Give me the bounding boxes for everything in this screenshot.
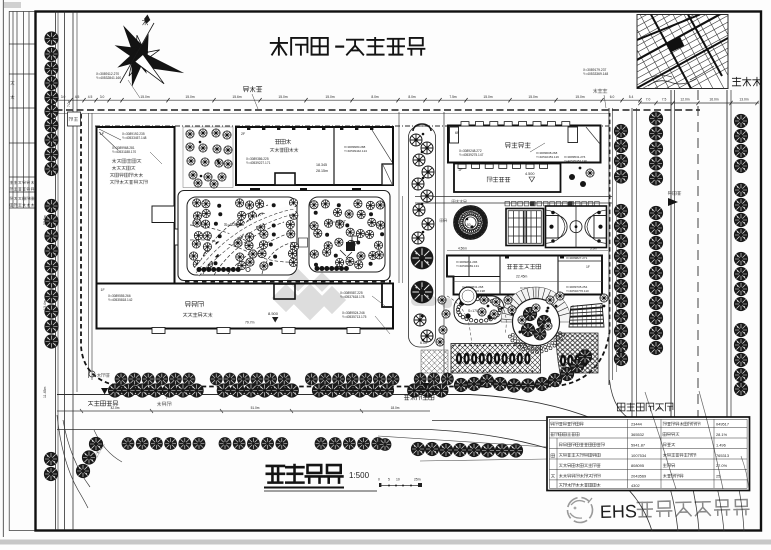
svg-text:Y=40535357.196: Y=40535357.196	[564, 159, 587, 163]
svg-text:16.0m: 16.0m	[709, 98, 718, 102]
svg-text:1007534: 1007534	[631, 453, 647, 458]
svg-text:3.0: 3.0	[100, 95, 105, 99]
svg-text:Y=40532776.110: Y=40532776.110	[566, 289, 589, 293]
svg-text:7.5m: 7.5m	[449, 95, 457, 99]
svg-text:51.0m: 51.0m	[251, 406, 260, 410]
svg-text:S=486.7: S=486.7	[330, 219, 346, 224]
svg-text:6.0: 6.0	[610, 95, 615, 99]
svg-text:4.50m: 4.50m	[458, 247, 467, 251]
svg-text:42.0m: 42.0m	[111, 406, 120, 410]
svg-text:2F: 2F	[459, 168, 463, 172]
svg-text:Y=40539227.171: Y=40539227.171	[246, 161, 271, 165]
svg-text:15.0m: 15.0m	[278, 95, 287, 99]
svg-text:15.0m: 15.0m	[325, 95, 334, 99]
svg-text:5.4: 5.4	[629, 95, 634, 99]
svg-text:15.6m: 15.6m	[232, 95, 241, 99]
svg-text:1.496: 1.496	[716, 442, 726, 447]
svg-text:57.5m: 57.5m	[43, 215, 47, 225]
svg-text:Y=40539275.147: Y=40539275.147	[459, 153, 484, 157]
svg-text:12.0m: 12.0m	[680, 98, 689, 102]
svg-text:Y=40532841.160: Y=40532841.160	[96, 76, 121, 80]
svg-text:25m: 25m	[414, 478, 421, 482]
svg-text:4.5: 4.5	[88, 95, 93, 99]
svg-text:15.0m: 15.0m	[528, 95, 537, 99]
svg-text:Y=40539442.124: Y=40539442.124	[344, 149, 367, 153]
svg-text:15.0m: 15.0m	[140, 95, 149, 99]
svg-text:4.50: 4.50	[464, 223, 471, 227]
svg-text:Y=40533369.148: Y=40533369.148	[583, 72, 608, 76]
svg-text:28.1%: 28.1%	[716, 432, 728, 437]
svg-text:765313: 765313	[716, 453, 729, 458]
svg-text:X=3089827.271: X=3089827.271	[566, 256, 588, 260]
svg-text:Y=40536869.131: Y=40536869.131	[456, 264, 479, 268]
svg-text:22.45m: 22.45m	[516, 275, 527, 279]
svg-text:Y=40532453.126: Y=40532453.126	[536, 155, 559, 159]
svg-text:EHS: EHS	[600, 501, 637, 522]
svg-text:Y=40533457.148: Y=40533457.148	[122, 136, 147, 140]
svg-text:15.0m: 15.0m	[185, 95, 194, 99]
svg-text:S=1068.5: S=1068.5	[224, 222, 244, 227]
svg-text:5: 5	[388, 478, 390, 482]
svg-text:4302: 4302	[631, 483, 640, 488]
svg-text:18.345: 18.345	[316, 163, 327, 167]
svg-text:1:500: 1:500	[349, 471, 370, 480]
svg-text:Y=40535818.142: Y=40535818.142	[108, 298, 133, 302]
svg-text:7.0m: 7.0m	[67, 100, 71, 107]
svg-text:7.0: 7.0	[646, 98, 651, 102]
svg-text:5941.87: 5941.87	[631, 442, 645, 447]
svg-text:808095: 808095	[631, 463, 644, 468]
svg-text:15.0m: 15.0m	[483, 95, 492, 99]
svg-text:6.00: 6.00	[420, 341, 427, 345]
svg-text:13.4m: 13.4m	[43, 300, 47, 310]
svg-text:11.45m: 11.45m	[43, 387, 47, 398]
svg-text:Y=40535713.175: Y=40535713.175	[342, 315, 367, 319]
svg-text:1F: 1F	[586, 265, 590, 269]
svg-text:8.0m: 8.0m	[371, 95, 379, 99]
svg-text:0: 0	[378, 478, 380, 482]
svg-text:13.0m: 13.0m	[739, 98, 748, 102]
svg-text:28.15m: 28.15m	[316, 169, 328, 173]
svg-text:8.500: 8.500	[268, 311, 279, 316]
svg-text:4.500: 4.500	[525, 172, 535, 176]
svg-text:15.0m: 15.0m	[575, 95, 584, 99]
svg-text:2043569: 2043569	[631, 474, 646, 479]
svg-text:79.7m: 79.7m	[245, 321, 255, 325]
svg-text:049517: 049517	[716, 422, 729, 427]
svg-text:10: 10	[396, 478, 400, 482]
svg-text:18.0m: 18.0m	[391, 406, 400, 410]
svg-text:7.5: 7.5	[662, 98, 667, 102]
svg-text:8.0m: 8.0m	[408, 95, 416, 99]
svg-text:365532: 365532	[631, 432, 644, 437]
svg-text:23444: 23444	[631, 422, 643, 427]
svg-text:Y=40531188.170: Y=40531188.170	[112, 150, 136, 154]
